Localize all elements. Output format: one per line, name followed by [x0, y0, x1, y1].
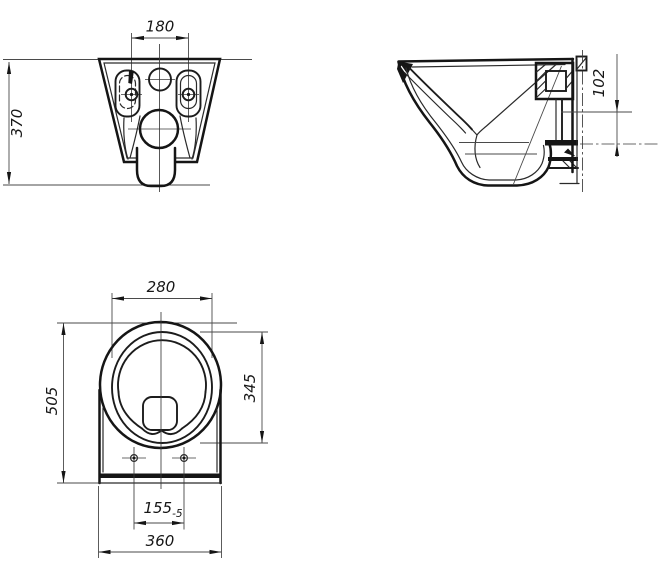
arrow-down	[615, 100, 619, 112]
dim-plan-length-label: 505	[43, 387, 61, 416]
dim-plan-bowl-length-label: 345	[241, 374, 259, 403]
inlet-spigot	[536, 57, 587, 100]
arrow-left	[99, 550, 111, 554]
arrow-left	[112, 296, 124, 300]
arrow-right	[176, 36, 189, 40]
sump-outline	[143, 397, 177, 430]
dim-side-inlet-outlet-label: 102	[590, 69, 608, 98]
arrow-up	[7, 62, 11, 74]
plan-view: 280 505 345	[43, 278, 268, 558]
arrow-up	[61, 323, 65, 335]
dim-plan-width: 360	[99, 486, 222, 558]
boss-inner-contour	[120, 76, 136, 109]
opening-lower-right	[182, 392, 206, 429]
flow-arrow	[564, 149, 576, 157]
dim-plan-bowl-width-label: 280	[147, 278, 176, 296]
bracket-hatch	[577, 58, 586, 69]
mount-hole-center	[130, 93, 133, 96]
side-view: 102	[397, 50, 658, 192]
arrow-left	[134, 521, 146, 525]
dim-rear-hole-spacing-label: 180	[146, 18, 175, 36]
arrow-left	[132, 36, 145, 40]
funnel-front-line	[472, 130, 480, 168]
arrow-down	[61, 471, 65, 483]
rear-view: 370 180	[3, 18, 252, 193]
hole-center	[183, 457, 186, 460]
seat-hole-left	[122, 447, 146, 530]
arrow-right	[200, 296, 212, 300]
rib-curve	[180, 116, 190, 158]
arrow-right	[172, 521, 184, 525]
arrow-up	[260, 332, 264, 344]
dim-rear-height-label: 370	[8, 109, 26, 138]
rim-top-edge	[399, 59, 574, 62]
opening-upper-arc	[118, 340, 206, 392]
inlet-bore	[546, 71, 566, 91]
mount-hole-center	[187, 93, 190, 96]
arrow-right	[210, 550, 222, 554]
rib-curve	[192, 118, 196, 159]
rim-lip-inner	[405, 73, 466, 134]
flush-stream-line	[514, 66, 562, 184]
dim-plan-seat-hole-spacing: 155-5	[134, 499, 184, 525]
arrow-down	[7, 172, 11, 184]
bowl-opening	[118, 340, 206, 434]
plate-bottom-bar	[99, 474, 222, 479]
dim-rear-height: 370	[7, 62, 26, 184]
arrow-down	[260, 431, 264, 443]
arrow-up	[615, 144, 619, 156]
left-mounting-boss	[116, 71, 140, 117]
dim-plan-bowl-width: 280	[112, 278, 212, 358]
outlet-hatch	[563, 161, 577, 168]
dim-plan-width-label: 360	[146, 532, 175, 550]
drawing-sheet: 370 180	[0, 0, 661, 582]
rim-inner-oval	[112, 332, 212, 443]
dim-plan-seat-hole-spacing-label: 155-5	[143, 499, 182, 520]
rib-curve	[124, 118, 128, 159]
outlet-stadium	[137, 148, 175, 186]
opening-lower-left	[119, 392, 143, 429]
hole-center	[133, 457, 136, 460]
rib-curve	[130, 116, 140, 158]
drawing-canvas: 370 180	[0, 0, 661, 582]
